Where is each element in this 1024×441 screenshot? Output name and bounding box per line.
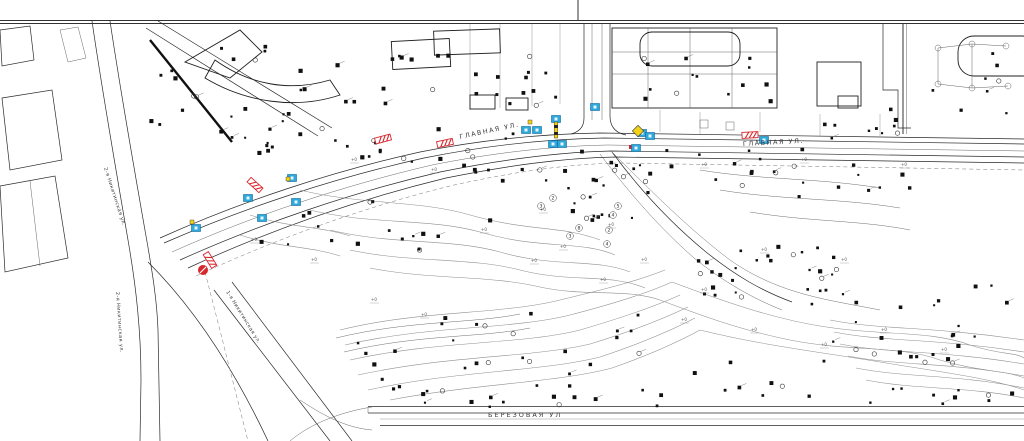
tree-dot: [364, 352, 367, 355]
tree-dot: [563, 169, 567, 173]
tree-dot: [381, 378, 384, 381]
tree-dot: [733, 162, 736, 165]
tree-dot: [643, 97, 647, 101]
tree-dot: [282, 120, 284, 122]
tree-symbol: [511, 332, 515, 336]
tree-dot: [995, 64, 999, 68]
tree-symbol: [584, 216, 588, 220]
tree-dot: [243, 107, 247, 111]
tree-dot: [816, 246, 819, 249]
tree-dot: [601, 213, 604, 216]
elevation-mark-text: +0: [371, 297, 377, 302]
lot-boundaries: [205, 24, 880, 441]
tree-dot: [268, 128, 271, 131]
tree-dot: [469, 400, 473, 404]
point-tick: [397, 347, 402, 349]
elevation-mark: +0: [900, 162, 909, 168]
blue-sign-marker: [632, 145, 641, 152]
point-tick: [592, 193, 597, 195]
tree-dot: [593, 215, 596, 218]
tree-dot: [710, 270, 713, 273]
tree-dot: [951, 335, 954, 338]
red-roadwork-marker: [742, 132, 758, 139]
tree-dot: [893, 125, 896, 128]
tree-dot: [909, 355, 913, 359]
tree-dot: [368, 155, 371, 158]
point-tick: [538, 101, 543, 103]
point-tick: [812, 266, 817, 268]
elevation-mark: +0: [840, 257, 849, 263]
tree-dot: [398, 55, 401, 58]
tree-dot: [159, 74, 162, 77]
point-tick: [199, 93, 204, 95]
tree-dot: [748, 66, 750, 68]
blue-sign-marker: [192, 225, 201, 232]
tree-dot: [529, 312, 533, 316]
point-tick: [641, 349, 646, 351]
contour-number: 8: [576, 225, 583, 232]
tree-symbol: [791, 253, 795, 257]
tree-dot: [705, 261, 709, 265]
tree-dot: [567, 187, 569, 189]
elevation-mark-text: +0: [608, 222, 614, 227]
tree-dot: [756, 259, 758, 261]
contour-number-text: 4: [606, 242, 609, 248]
tree-dot: [568, 372, 571, 375]
upper-diagonal-road: [146, 21, 332, 142]
tree-dot: [932, 89, 935, 92]
elevation-mark: +0: [750, 327, 759, 333]
yellow-dot-marker: [528, 120, 532, 124]
point-tick: [493, 393, 498, 395]
elevation-mark-text: +0: [821, 342, 827, 347]
tree-symbol: [471, 155, 475, 159]
tree-dot: [748, 149, 750, 151]
tree-dot: [522, 91, 526, 95]
tree-dot: [573, 395, 577, 399]
blue-square-glyph: [247, 197, 250, 200]
tree-symbol: [895, 131, 899, 135]
point-tick: [440, 232, 445, 234]
elevation-mark: +0: [599, 277, 608, 283]
tree-dot: [502, 401, 505, 404]
street-label: БЕРЕЗОВАЯ УЛ: [488, 411, 562, 419]
tree-dot: [632, 167, 635, 170]
tree-dot: [616, 329, 619, 332]
tree-symbol: [581, 195, 585, 199]
tree-dot: [475, 361, 479, 365]
tree-dot: [609, 161, 613, 165]
tree-dot: [837, 185, 840, 188]
tree-dot: [656, 404, 659, 407]
tree-dot: [615, 336, 618, 339]
tree-dot: [475, 323, 478, 326]
tree-dot: [330, 239, 333, 242]
tree-dot: [149, 119, 153, 123]
tree-dot: [615, 164, 618, 167]
tree-dot: [748, 57, 751, 60]
tree-dot: [987, 399, 990, 402]
tree-dot: [391, 57, 395, 61]
tree-symbol: [528, 54, 532, 58]
elevation-mark: +0: [700, 287, 709, 293]
tree-dot: [487, 169, 490, 172]
tree-dot: [266, 149, 270, 153]
tree-dot: [741, 83, 745, 87]
tree-dot: [589, 363, 592, 366]
tree-dot: [474, 171, 477, 174]
tree-symbol: [440, 389, 444, 393]
tree-dot: [531, 89, 535, 93]
tree-dot: [764, 82, 768, 86]
tree-dot: [659, 393, 663, 397]
tree-dot: [832, 256, 835, 259]
tree-dot: [881, 132, 883, 134]
tree-dot: [738, 386, 742, 390]
tree-dot: [244, 137, 246, 139]
tree-dot: [868, 130, 870, 132]
elevation-mark-text: +0: [881, 327, 887, 332]
tree-dot: [769, 259, 772, 262]
tree-dot: [552, 395, 556, 399]
tree-dot: [257, 151, 261, 155]
tree-dot: [692, 74, 694, 76]
tree-dot: [776, 245, 780, 249]
tree-dot: [714, 178, 717, 181]
elevation-mark-text: +0: [251, 237, 257, 242]
tree-dot: [974, 285, 978, 289]
tree-dot: [831, 137, 834, 140]
tree-symbol: [253, 58, 257, 62]
tree-dot: [894, 118, 898, 122]
tree-symbol: [674, 91, 678, 95]
utility-pole-network: [935, 41, 1011, 91]
tree-dot: [735, 267, 737, 269]
tree-dot: [298, 132, 302, 136]
tree-dot: [302, 214, 305, 217]
left-street-road: [92, 21, 268, 441]
point-tick: [307, 85, 312, 87]
tree-dot: [524, 76, 528, 80]
yellow-dot-marker: [190, 220, 194, 224]
tree-symbol: [872, 352, 876, 356]
tree-dot: [731, 279, 734, 282]
tree-dot: [879, 186, 881, 188]
elevation-mark-text: +0: [941, 347, 947, 352]
tree-dot: [697, 259, 700, 262]
red-bar-outline: [247, 177, 263, 192]
topographic-survey-map: ГЛАВНАЯ УЛ.ГЛАВНАЯ УЛ.БЕРЕЗОВАЯ УЛ2-я Ни…: [0, 0, 1024, 441]
tree-dot: [220, 47, 223, 50]
tree-dot: [475, 92, 479, 96]
point-tick: [223, 128, 228, 130]
elevation-mark: +0: [640, 257, 649, 263]
tree-dot: [260, 240, 264, 244]
tree-dot: [831, 273, 833, 275]
tree-dot: [307, 211, 311, 215]
tree-dot: [287, 112, 291, 116]
tree-dot: [437, 235, 440, 238]
ravine-track: [600, 152, 792, 310]
tree-dot: [641, 389, 644, 392]
tree-dot: [545, 179, 547, 181]
tree-dot: [637, 314, 640, 317]
tree-dot: [750, 170, 754, 174]
sheet-frame: [0, 0, 1024, 134]
tree-dot: [908, 186, 911, 189]
contour-number: 2: [606, 227, 613, 234]
tree-dot: [974, 335, 976, 337]
tree-dot: [589, 196, 592, 199]
annotation-marks-layer: 23548234+0+0+0+0+0+0+0+0+0+0+0+0+0+0+0+0…: [250, 157, 949, 353]
elevation-mark-text: +0: [641, 257, 647, 262]
blue-square-glyph: [295, 201, 298, 204]
tree-symbol: [483, 324, 487, 328]
tree-dot: [418, 248, 421, 251]
blue-square-glyph: [536, 129, 539, 132]
elevation-mark-text: +0: [701, 162, 707, 167]
point-tick: [272, 125, 277, 127]
elevation-mark-text: +0: [801, 157, 807, 162]
tree-dot: [842, 293, 844, 295]
tree-symbol: [612, 168, 616, 172]
street-label: 1-я Никитинская ул.: [224, 290, 261, 345]
tree-dot: [852, 163, 855, 166]
point-tick: [619, 327, 624, 329]
tree-dot: [727, 93, 730, 96]
tree-dot: [739, 250, 742, 253]
tree-dot: [440, 322, 443, 325]
tree-dot: [571, 209, 575, 213]
tree-dot: [941, 402, 944, 405]
contour-number: 3: [567, 233, 574, 240]
tree-dot: [508, 102, 511, 105]
tree-symbol: [923, 360, 927, 364]
contour-number: 4: [610, 212, 617, 219]
contour-number-text: 3: [569, 234, 572, 240]
tree-dot: [544, 72, 547, 75]
tree-dot: [398, 385, 401, 388]
tree-dot: [230, 116, 232, 118]
tree-dot: [495, 93, 498, 96]
tree-dot: [231, 136, 234, 139]
tree-dot: [282, 113, 284, 115]
pole-stripe: [554, 125, 558, 128]
tree-dot: [696, 75, 699, 78]
tree-dot: [379, 150, 382, 153]
yellow-striped-pole-marker: [554, 122, 558, 138]
tree-dot: [265, 144, 268, 147]
tree-symbol: [527, 359, 531, 363]
blue-sign-marker: [549, 141, 558, 148]
tree-dot: [489, 396, 493, 400]
tree-dot: [219, 130, 223, 134]
point-tick: [834, 134, 839, 136]
tree-dot: [271, 146, 274, 149]
elevation-mark-text: +0: [901, 162, 907, 167]
tree-dot: [630, 330, 633, 333]
elevation-mark-text: +0: [761, 247, 767, 252]
tree-dot: [631, 217, 633, 219]
tree-dot: [426, 390, 429, 393]
tree-dot: [800, 148, 804, 152]
tree-dot: [592, 178, 596, 182]
tree-dot: [437, 127, 441, 131]
tree-dot: [990, 284, 992, 286]
tree-dot: [880, 336, 884, 340]
elevation-mark-text: +0: [481, 227, 487, 232]
point-tick: [598, 395, 603, 397]
tree-dot: [857, 174, 859, 176]
elevation-mark: +0: [430, 167, 439, 173]
tree-dot: [711, 285, 715, 289]
elevation-mark: +0: [700, 162, 709, 168]
north-street-road: [571, 24, 626, 135]
contour-number-text: 4: [612, 213, 615, 219]
tree-dot: [303, 87, 307, 91]
parcel-blocks: [0, 26, 86, 272]
tree-dot: [646, 62, 650, 66]
tree-dot: [718, 273, 722, 277]
tree-dot: [158, 123, 161, 126]
tree-dot: [867, 189, 870, 192]
blue-square-glyph: [649, 135, 652, 138]
blue-square-glyph: [261, 217, 264, 220]
blue-square-glyph: [555, 118, 558, 121]
tree-dot: [411, 160, 413, 162]
elevation-mark-text: +0: [560, 244, 566, 249]
red-circle-marker: [199, 266, 208, 275]
elevation-mark-text: +0: [600, 277, 606, 282]
tree-dot: [412, 235, 414, 237]
tree-dot: [392, 387, 395, 390]
tree-symbol: [486, 360, 490, 364]
tree-dot: [729, 361, 733, 365]
tree-dot: [639, 164, 641, 166]
elevation-mark-text: +0: [540, 207, 546, 212]
street-label: ГЛАВНАЯ УЛ.: [459, 120, 520, 141]
tree-dot: [464, 367, 467, 370]
tree-symbol: [320, 126, 324, 130]
tree-dot: [267, 142, 269, 144]
tree-dot: [724, 389, 727, 392]
pole-stripe: [554, 132, 558, 135]
tree-dot: [496, 75, 500, 79]
contour-number: 4: [604, 241, 611, 248]
tree-dot: [393, 349, 397, 353]
tree-dot: [512, 132, 515, 135]
elevation-mark: +0: [680, 317, 689, 323]
tree-dot: [899, 305, 903, 309]
tree-dot: [501, 179, 505, 183]
elevation-mark: +0: [530, 258, 539, 264]
point-tick: [348, 98, 353, 100]
tree-dot: [898, 350, 902, 354]
tree-dot: [181, 109, 184, 112]
tree-dot: [263, 45, 267, 49]
tree-symbol: [637, 351, 641, 355]
tree-dot: [984, 77, 986, 79]
contour-number: 5: [615, 203, 622, 210]
tree-dot: [1005, 112, 1007, 114]
tree-dot: [811, 303, 814, 306]
tree-dot: [489, 406, 491, 408]
tree-dot: [646, 191, 649, 194]
point-tick: [709, 258, 714, 260]
elevation-mark: +0: [940, 347, 949, 353]
tree-symbol: [643, 179, 647, 183]
tree-dot: [761, 394, 764, 397]
tree-dot: [665, 149, 668, 152]
bottom-street-road: [290, 407, 1024, 441]
point-tick: [572, 370, 577, 372]
point-tick: [776, 168, 781, 170]
blue-square-glyph: [635, 147, 638, 150]
tree-dot: [527, 71, 530, 74]
tree-dot: [833, 124, 836, 127]
tree-dot: [300, 89, 302, 91]
tree-dot: [693, 371, 697, 375]
tree-symbol: [820, 276, 824, 280]
tree-dot: [346, 145, 349, 148]
tree-symbol: [430, 87, 434, 91]
tree-dot: [932, 394, 935, 397]
tree-dot: [766, 254, 769, 257]
blue-square-glyph: [594, 106, 597, 109]
point-tick: [542, 166, 547, 168]
point-tick: [835, 338, 840, 340]
tree-dot: [957, 325, 959, 327]
elevation-mark-text: +0: [751, 327, 757, 332]
tree-symbol: [621, 175, 625, 179]
tree-dot: [953, 395, 957, 399]
tree-symbol: [402, 156, 406, 160]
tree-dot: [819, 289, 822, 292]
blue-square-glyph: [525, 129, 528, 132]
elevation-mark: +0: [760, 247, 769, 253]
tree-dot: [384, 102, 388, 106]
tree-dot: [956, 344, 960, 348]
tree-dot: [563, 350, 567, 354]
blue-sign-marker: [552, 116, 561, 123]
tree-dot: [759, 158, 761, 160]
blue-square-glyph: [195, 227, 198, 230]
tree-dot: [344, 100, 348, 104]
tree-dot: [670, 164, 674, 168]
elevation-mark: +0: [350, 157, 359, 163]
elevation-mark-text: +0: [531, 258, 537, 263]
tree-dot: [900, 387, 902, 389]
tree-dot: [960, 109, 963, 112]
tree-symbol: [997, 79, 1001, 83]
tree-dot: [421, 392, 425, 396]
tree-dot: [372, 362, 376, 366]
tree-dot: [360, 155, 364, 159]
tree-dot: [933, 304, 935, 306]
tree-dot: [438, 157, 442, 161]
tree-dot: [421, 232, 425, 236]
point-tick: [415, 232, 420, 234]
tree-dot: [287, 243, 289, 245]
tree-dot: [568, 384, 571, 387]
tree-dot: [410, 57, 414, 61]
elevation-mark-text: +0: [701, 287, 707, 292]
pole-body: [554, 122, 558, 138]
contour-number-text: 2: [552, 196, 555, 202]
tree-dot: [264, 50, 267, 53]
blue-sign-marker: [244, 195, 253, 202]
tree-dot: [232, 57, 236, 61]
